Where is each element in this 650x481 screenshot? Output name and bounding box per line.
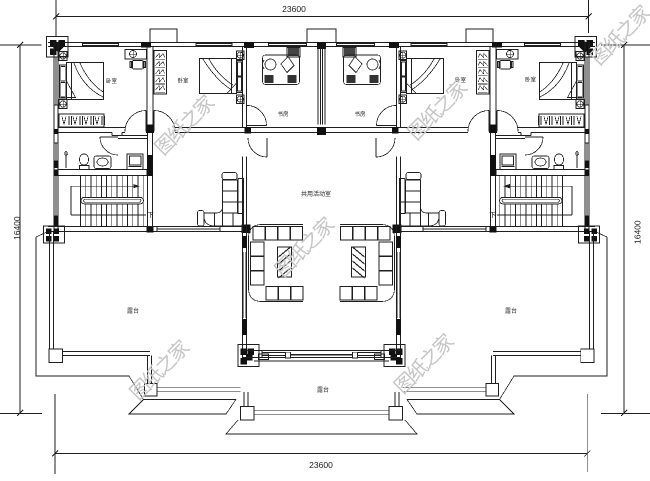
svg-text:卧室: 卧室 [106, 77, 118, 85]
svg-text:书房: 书房 [277, 110, 289, 118]
svg-text:露台: 露台 [505, 307, 517, 315]
svg-text:23600: 23600 [282, 4, 306, 14]
svg-text:卧室: 卧室 [525, 76, 537, 84]
svg-text:23600: 23600 [309, 460, 333, 470]
svg-text:下: 下 [489, 211, 496, 219]
svg-text:露台: 露台 [127, 307, 139, 315]
svg-text:16400: 16400 [633, 220, 643, 244]
svg-text:书房: 书房 [354, 110, 366, 118]
svg-text:共用活动室: 共用活动室 [301, 190, 331, 198]
svg-text:卧室: 卧室 [177, 77, 189, 85]
svg-text:下: 下 [147, 211, 154, 219]
svg-text:16400: 16400 [12, 216, 22, 240]
svg-text:露台: 露台 [317, 386, 329, 394]
